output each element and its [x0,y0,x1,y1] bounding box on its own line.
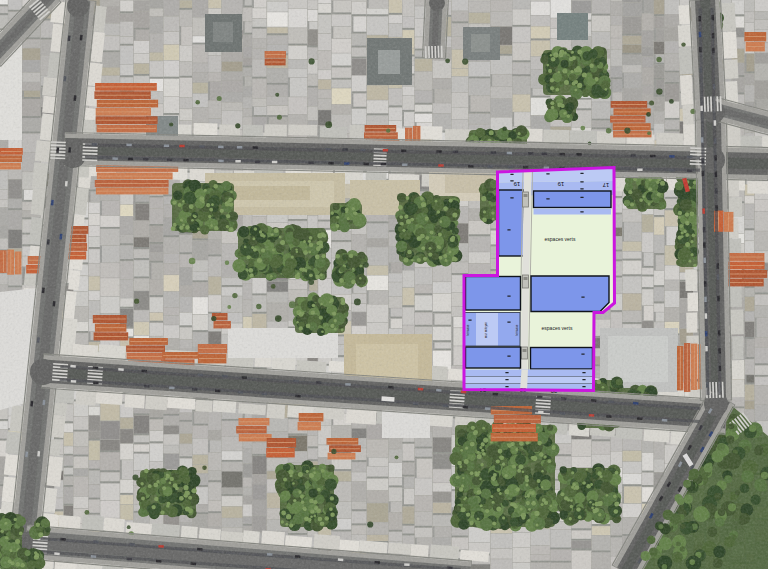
svg-text:espaces verts: espaces verts [545,236,576,242]
svg-text:terrasse: terrasse [466,324,470,335]
svg-text:mur mitoyen: mur mitoyen [484,321,488,338]
svg-text:17: 17 [602,182,609,188]
svg-text:espaces verts: espaces verts [542,325,573,331]
svg-text:terrasse: terrasse [515,324,519,335]
svg-text:19: 19 [557,181,564,187]
svg-text:19: 19 [513,181,520,187]
